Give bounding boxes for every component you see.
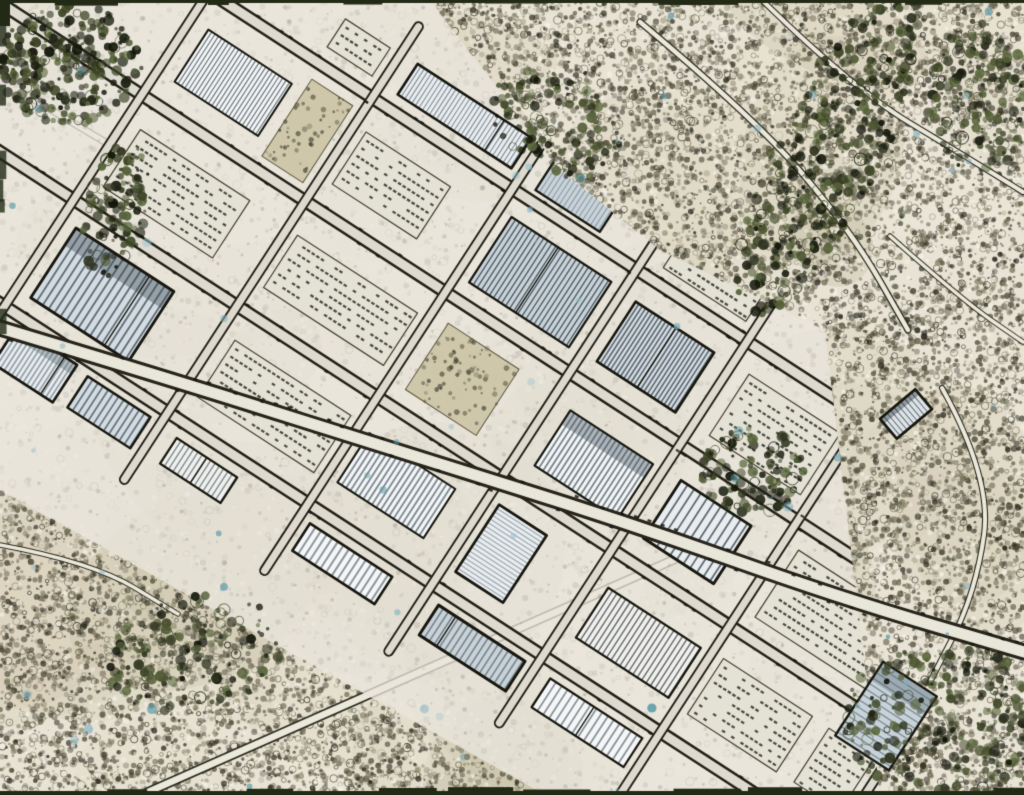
aerial-canvas (0, 0, 1024, 795)
aerial-sketch-map (0, 0, 1024, 795)
